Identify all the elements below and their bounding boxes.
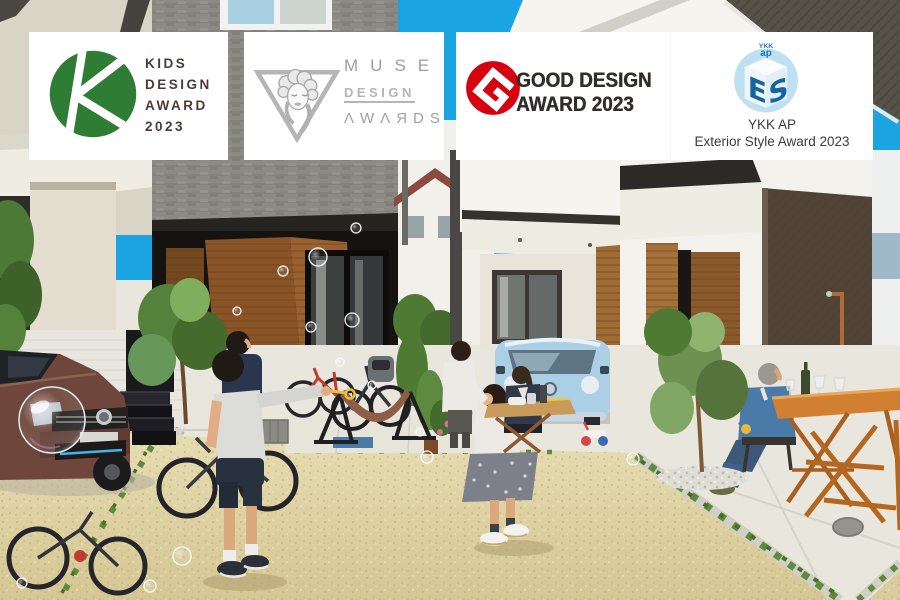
muse-title: MUSE [344,56,442,76]
muse-design-label: DESIGN [344,85,415,103]
dark-pillar-wall [762,188,872,355]
bench [742,437,796,445]
good-design-line1: GOOD DESIGN [516,69,651,93]
kids-award-line3: AWARD [145,95,212,116]
ykk-award-line1: YKK AP [671,116,873,133]
good-design-line2: AWARD 2023 [516,93,651,117]
badge-muse-design-awards: MUSE DESIGN ΛWΛЯDS [244,32,444,160]
muse-awards-label: ΛWΛЯDS [344,110,442,127]
kids-award-line4: 2023 [145,116,212,137]
badge-ykk-ap-exterior-style-award: YKK ap E S YKK AP Exterior Style Award 2… [671,32,873,160]
big-soap-bubble [19,387,85,453]
manhole-cover [833,518,863,536]
carport-window [492,270,562,344]
right-house-bush [644,308,692,356]
badge-good-design-award: GOOD DESIGN AWARD 2023 [456,32,670,160]
kids-award-line2: DESIGN [145,74,212,95]
kids-award-line1: KIDS [145,53,212,74]
upper-window [220,0,332,30]
badge-kids-design-award: KIDS DESIGN AWARD 2023 [29,32,228,160]
muse-design-awards-logo-icon [250,56,344,146]
ykk-award-line2: Exterior Style Award 2023 [671,133,873,150]
hero-photo: KIDS DESIGN AWARD 2023 MUSE DESIGN ΛWΛЯD… [0,0,900,600]
good-design-g-mark-icon [465,60,521,116]
kids-design-award-logo-icon [47,48,139,140]
ykk-ap-es-logo-icon: YKK ap E S [728,38,804,114]
